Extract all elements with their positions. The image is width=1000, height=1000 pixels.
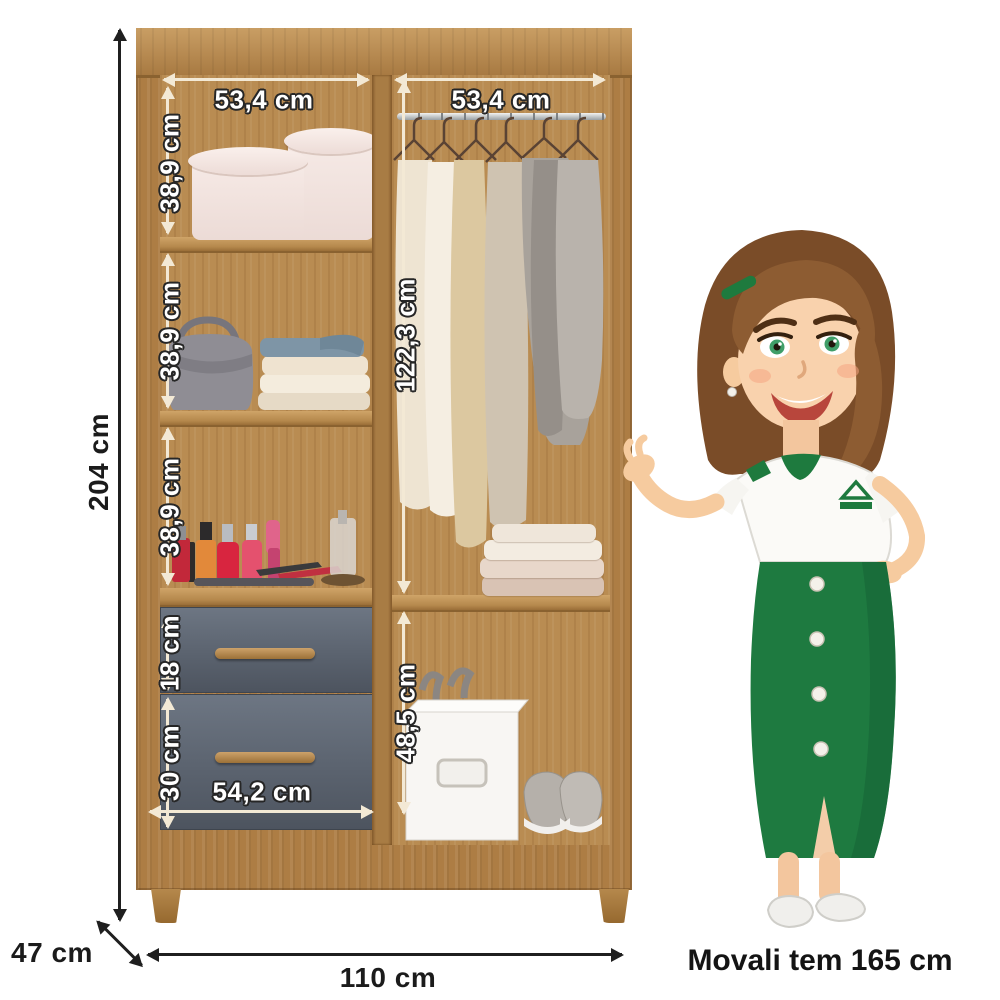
mascot-caption: Movali tem 165 cm (640, 944, 1000, 978)
dim-shelf2-label: 38,9 cm (155, 282, 186, 381)
shoe-compartment-items (392, 660, 610, 845)
garment-gold-dress (450, 160, 488, 548)
dim-drawer-width-arrow (150, 810, 372, 813)
dim-left-width-label: 53,4 cm (215, 85, 314, 116)
mascot-woman (620, 210, 970, 950)
drawer-top-handle (215, 648, 315, 659)
dim-depth-label: 47 cm (11, 937, 93, 969)
sneakers (524, 772, 602, 834)
dim-total-width-label: 110 cm (340, 962, 436, 994)
mascot-presenting-arm (640, 476, 716, 510)
right-stack-layer (480, 558, 604, 578)
center-divider (372, 75, 392, 845)
garment-tan-dress (484, 162, 528, 529)
dim-drawer-bottom-label: 30 cm (155, 725, 186, 801)
hat-box-tall-lid (284, 128, 378, 154)
dim-depth-arrow (97, 920, 143, 966)
dim-hanging-label: 122,3 cm (391, 278, 422, 392)
folded-clothes-stack (258, 335, 370, 410)
dim-total-height-arrow (118, 30, 121, 920)
wardrobe-crown (136, 28, 632, 78)
mascot-shoe-left (768, 896, 813, 927)
cosmetics (160, 510, 372, 590)
garment-gray-vest (556, 160, 604, 419)
dim-left-width-arrow (164, 78, 368, 81)
sandals (422, 671, 470, 700)
dim-right-width-arrow (396, 78, 604, 81)
hangers (394, 118, 598, 162)
dim-total-width-arrow (148, 953, 622, 956)
handbag-and-clothes (160, 300, 372, 412)
wardrobe-foot-left (149, 889, 183, 923)
dim-right-width-label: 53,4 cm (452, 85, 551, 116)
dim-shelf3-label: 38,9 cm (155, 458, 186, 557)
drawer-bottom-handle (215, 752, 315, 763)
dim-shelf1-label: 38,9 cm (155, 114, 186, 213)
box-label-plate (438, 760, 486, 786)
shelf-3 (160, 588, 372, 607)
dim-shoe-space-label: 48,5 cm (391, 664, 422, 763)
dim-drawer-top-label: 18 cm (155, 615, 186, 691)
dim-total-height-label: 204 cm (83, 413, 115, 511)
right-stack-layer (482, 576, 604, 596)
shelf-2 (160, 411, 372, 427)
dim-drawer-width-label: 54,2 cm (213, 777, 312, 808)
right-stack-layer (484, 540, 602, 560)
mascot-shoe-right (816, 894, 865, 921)
product-dimension-diagram: 53,4 cm 53,4 cm 38,9 cm 38,9 cm 38,9 cm … (0, 0, 1000, 1000)
right-stack-layer (492, 524, 596, 542)
hat-box-short-lid (188, 147, 308, 175)
